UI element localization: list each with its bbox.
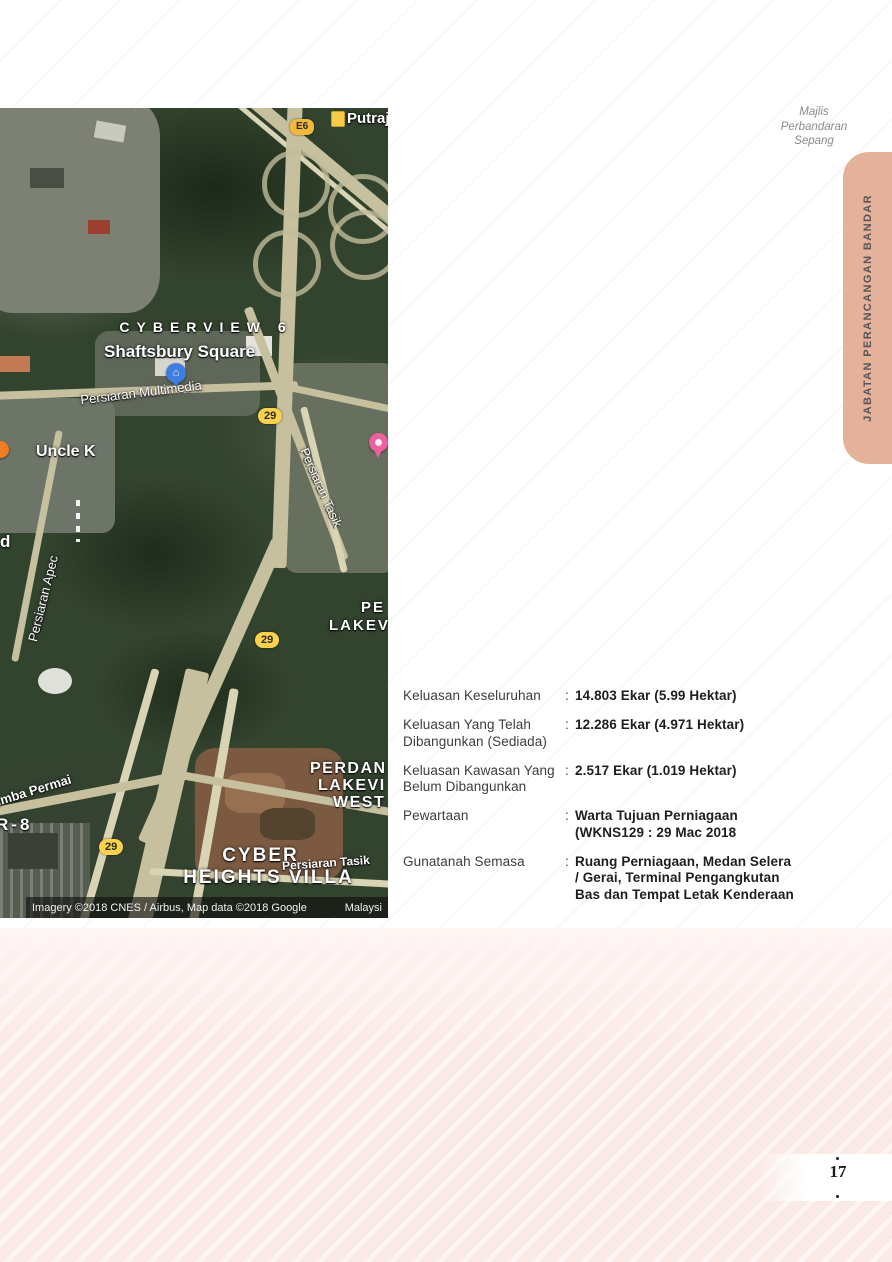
map-label-perdana-lakeview-west-partial: PERDAN xyxy=(310,760,387,778)
detail-row: Gunatanah Semasa : Ruang Perniagaan, Med… xyxy=(403,854,863,903)
section-side-tab: JABATAN PERANCANGAN BANDAR xyxy=(843,152,892,464)
map-dome-building xyxy=(38,668,72,694)
map-label-partial-d: d xyxy=(0,532,10,552)
detail-colon: : xyxy=(565,717,575,750)
map-bare-earth-patch xyxy=(260,808,315,840)
map-label-cyberview-6: CYBERVIEW 6 xyxy=(96,319,316,335)
map-label-uncle-k: Uncle K xyxy=(36,443,96,461)
org-name-line: Sepang xyxy=(744,134,884,149)
map-attribution-country: Malaysi xyxy=(345,902,382,914)
map-label-perdana-lakeview-partial: LAKEV xyxy=(329,617,388,634)
detail-colon: : xyxy=(565,808,575,841)
map-label-r8: R-8 xyxy=(0,815,32,835)
map-interchange-loop xyxy=(330,210,388,280)
route-shield-29-icon: 29 xyxy=(258,408,282,424)
route-shield-29-icon: 29 xyxy=(255,632,279,648)
detail-label: Keluasan Keseluruhan xyxy=(403,688,565,704)
detail-row: Keluasan Yang Telah Dibangunkan (Sediada… xyxy=(403,717,863,750)
section-side-tab-label: JABATAN PERANCANGAN BANDAR xyxy=(862,194,874,422)
detail-label: Gunatanah Semasa xyxy=(403,854,565,903)
detail-label: Keluasan Yang Telah Dibangunkan (Sediada… xyxy=(403,717,565,750)
map-label-putrajaya: Putraja xyxy=(347,110,388,127)
map-building xyxy=(8,833,58,869)
detail-value: 2.517 Ekar (1.019 Hektar) xyxy=(575,763,795,796)
route-shield-29-icon: 29 xyxy=(99,839,123,855)
map-attribution-bar: Imagery ©2018 CNES / Airbus, Map data ©2… xyxy=(26,897,388,918)
map-label-perdana-lakeview-west-partial: WEST xyxy=(333,794,385,812)
detail-colon: : xyxy=(565,763,575,796)
route-shield-e6-icon: E6 xyxy=(290,119,314,135)
page-number: 17 xyxy=(822,1162,854,1182)
map-label-perdana-lakeview-west-partial: LAKEVI xyxy=(318,777,386,795)
detail-value: Ruang Perniagaan, Medan Selera / Gerai, … xyxy=(575,854,795,903)
map-building xyxy=(30,168,64,188)
page-number-dot xyxy=(836,1157,839,1160)
detail-value: 12.286 Ekar (4.971 Hektar) xyxy=(575,717,795,750)
map-interchange-loop xyxy=(253,230,321,298)
satellite-map-image: ⌂ E6 29 29 29 Putraja CYBERVIEW 6 Shafts… xyxy=(0,108,388,918)
map-attribution-text: Imagery ©2018 CNES / Airbus, Map data ©2… xyxy=(32,902,307,914)
document-page: Majlis Perbandaran Sepang JABATAN PERANC… xyxy=(0,0,892,1262)
map-building xyxy=(88,220,110,234)
map-lane-dashes xyxy=(76,500,80,542)
detail-label: Keluasan Kawasan Yang Belum Dibangunkan xyxy=(403,763,565,796)
map-interchange-loop xyxy=(262,150,330,218)
detail-label: Pewartaan xyxy=(403,808,565,841)
pink-place-marker-icon xyxy=(369,433,388,452)
map-urban-patch xyxy=(0,108,160,313)
org-name-line: Majlis xyxy=(744,105,884,120)
detail-row: Keluasan Kawasan Yang Belum Dibangunkan … xyxy=(403,763,863,796)
detail-row: Pewartaan : Warta Tujuan Perniagaan (WKN… xyxy=(403,808,863,841)
detail-colon: : xyxy=(565,688,575,704)
map-label-perdana-lakeview-partial: PE xyxy=(361,599,385,616)
map-label-shaftsbury-square: Shaftsbury Square xyxy=(104,342,255,362)
detail-value: 14.803 Ekar (5.99 Hektar) xyxy=(575,688,795,704)
map-label-cyber-heights-villa: HEIGHTS VILLA xyxy=(136,867,388,889)
putrajaya-marker-icon xyxy=(331,111,345,127)
detail-value: Warta Tujuan Perniagaan (WKNS129 : 29 Ma… xyxy=(575,808,795,841)
map-building xyxy=(0,356,30,372)
map-urban-patch xyxy=(0,398,115,533)
detail-colon: : xyxy=(565,854,575,903)
bottom-decorative-band xyxy=(0,928,892,1262)
land-details-list: Keluasan Keseluruhan : 14.803 Ekar (5.99… xyxy=(403,688,863,916)
org-name-line: Perbandaran xyxy=(744,120,884,135)
org-header: Majlis Perbandaran Sepang xyxy=(744,105,884,149)
detail-row: Keluasan Keseluruhan : 14.803 Ekar (5.99… xyxy=(403,688,863,704)
page-number-dot xyxy=(836,1195,839,1198)
